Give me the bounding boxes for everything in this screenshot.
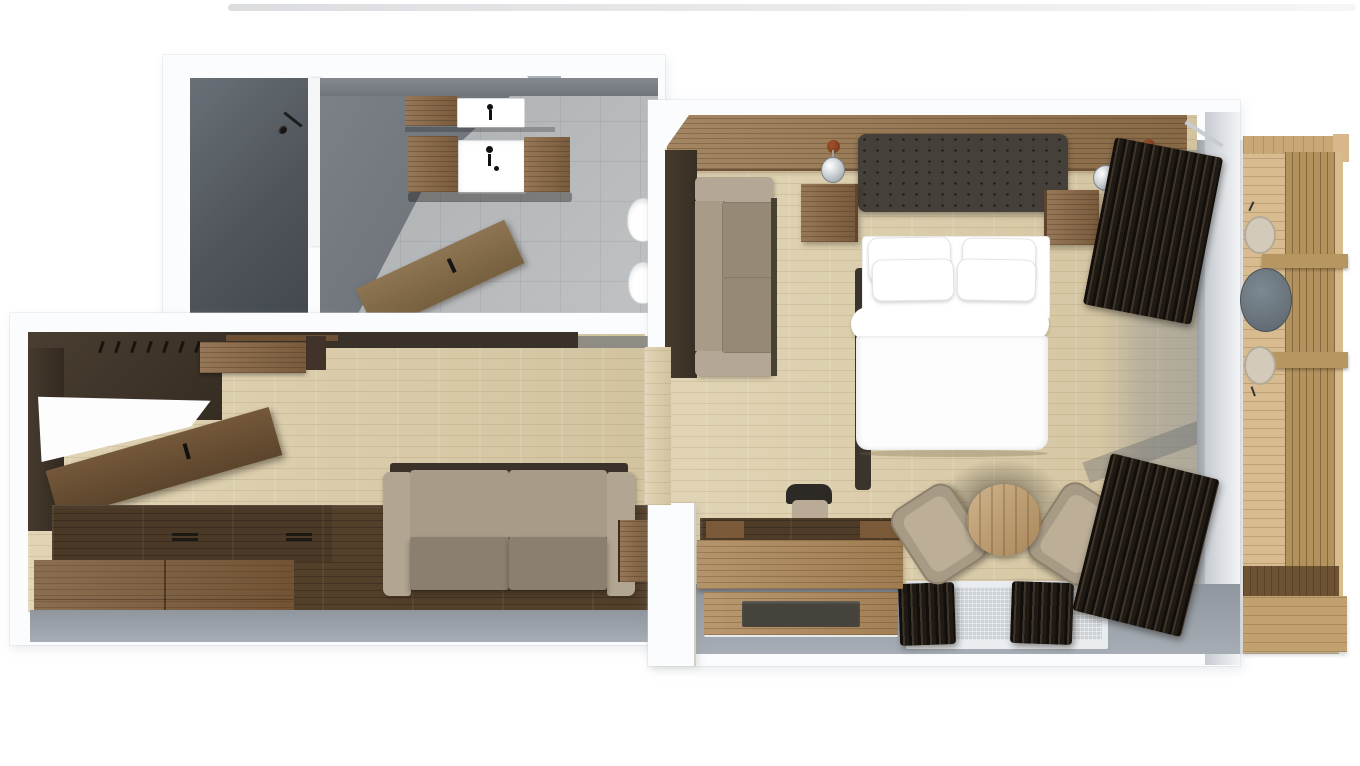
- balcony-stool: [1244, 346, 1276, 385]
- sofa-armrest: [695, 177, 773, 203]
- sofa-seat-cushion: [410, 537, 509, 590]
- railing-crossbeam: [1262, 254, 1348, 268]
- sofa-seat-cushion: [722, 277, 776, 353]
- door-handle-icon: [447, 258, 457, 273]
- hook-icon: [114, 341, 121, 353]
- pendant-lamp: [821, 157, 845, 183]
- north-wall-face-light: [578, 336, 650, 348]
- sofa-armrest: [695, 350, 773, 376]
- railing-bottom-slats: [1243, 566, 1339, 596]
- balcony-stool: [1244, 216, 1276, 254]
- bench-groove: [34, 599, 294, 600]
- sofa: [382, 461, 642, 607]
- hook-icon: [130, 341, 137, 353]
- vanity-main-cabinet: [408, 136, 458, 192]
- balcony-table: [1240, 268, 1292, 332]
- sofa-back-cushion: [509, 470, 607, 540]
- faucet-icon: [489, 110, 492, 120]
- sofa-seat-cushion: [722, 202, 776, 279]
- page-shadow: [228, 4, 1356, 11]
- sofa-back-cushion: [695, 201, 725, 351]
- railing-edge: [1335, 152, 1343, 596]
- bedroom-sofa: [693, 176, 777, 378]
- duvet: [856, 336, 1048, 450]
- railing-bottom-beam: [1243, 596, 1347, 652]
- bathroom: [163, 55, 665, 337]
- sofa-armrest: [383, 472, 411, 596]
- vanity-shadow: [408, 192, 572, 202]
- bed-foot-shadow: [858, 450, 1048, 457]
- desk-tray: [706, 521, 744, 538]
- pillow: [957, 258, 1037, 301]
- door-handle-icon: [183, 443, 191, 459]
- pillow: [872, 258, 955, 301]
- dark-mat: [742, 601, 860, 627]
- railing-screen: [1285, 152, 1335, 596]
- bed: [848, 160, 1104, 496]
- bathroom-wall-face-top: [320, 78, 658, 96]
- curtain-window-right: [1010, 581, 1074, 645]
- faucet-icon: [486, 146, 493, 153]
- hook-icon: [98, 341, 105, 353]
- bench-handle-icon: [172, 533, 198, 536]
- bedroom: [648, 100, 1240, 666]
- vanity-shadow: [405, 127, 555, 132]
- wall-cabinet: [200, 342, 306, 373]
- bench-handle-icon: [286, 533, 312, 536]
- shower-partition-wall: [308, 78, 320, 246]
- coffee-table: [967, 484, 1041, 556]
- sofa-frame: [771, 198, 777, 376]
- stub-wall: [648, 503, 696, 666]
- side-table: [618, 520, 652, 582]
- hook-icon: [178, 341, 185, 353]
- luggage-rack: [704, 592, 898, 637]
- faucet-icon: [494, 166, 499, 171]
- wall-cabinet-dark: [306, 336, 326, 370]
- sofa-back-cushion: [410, 470, 509, 540]
- south-wall-face: [30, 610, 662, 642]
- faucet-icon: [488, 154, 491, 166]
- hook-icon: [146, 341, 153, 353]
- curtain-window-left: [898, 582, 956, 646]
- desk-front: [697, 540, 903, 589]
- entry: [10, 313, 665, 645]
- vanity-main-cabinet-right: [524, 137, 570, 192]
- balcony: [1240, 130, 1352, 660]
- shower-head-icon: [277, 124, 287, 134]
- floorplan: [0, 0, 1360, 766]
- vanity-top-cabinet: [405, 96, 457, 126]
- sofa-seat-cushion: [509, 537, 607, 590]
- hook-icon: [162, 341, 169, 353]
- corridor-floor: [645, 347, 671, 505]
